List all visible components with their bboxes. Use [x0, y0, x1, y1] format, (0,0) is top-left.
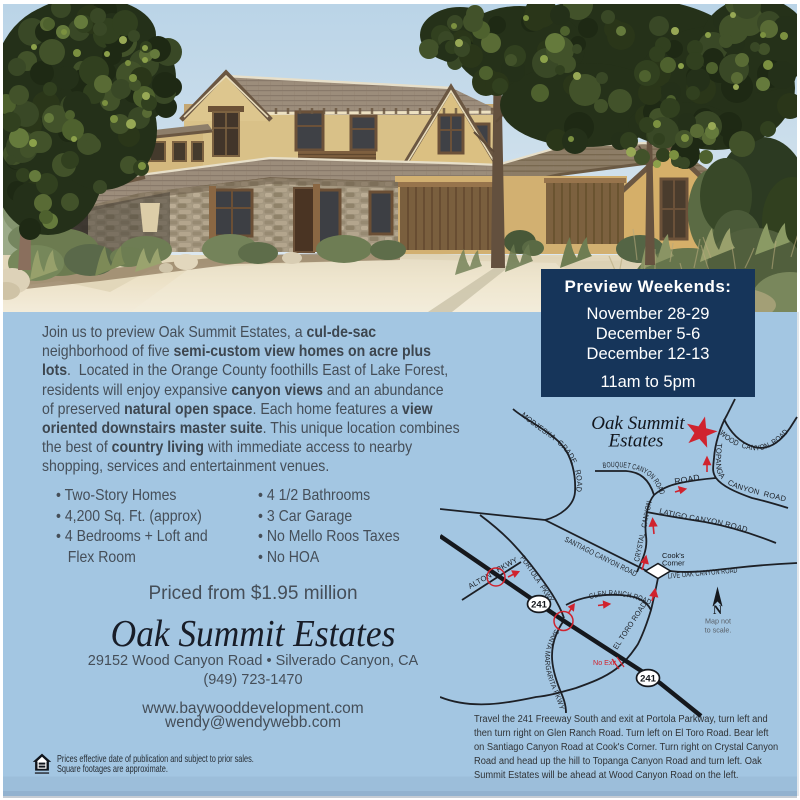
- svg-text:TOPANGA CANYON ROAD: TOPANGA CANYON ROAD: [714, 443, 788, 504]
- svg-text:CRYSTAL CANYON: CRYSTAL CANYON: [632, 500, 654, 563]
- svg-text:Estates: Estates: [608, 431, 664, 452]
- svg-text:SANTIAGO CANYON ROAD: SANTIAGO CANYON ROAD: [563, 535, 639, 579]
- svg-text:BOUQUET CANYON ROAD: BOUQUET CANYON ROAD: [602, 460, 667, 496]
- svg-text:SANTA MARGARITA PKWY: SANTA MARGARITA PKWY: [543, 628, 567, 711]
- svg-text:to scale.: to scale.: [705, 626, 732, 635]
- svg-text:Corner: Corner: [662, 559, 685, 568]
- svg-text:241: 241: [531, 600, 548, 611]
- svg-text:WOOD CANYON ROAD: WOOD CANYON ROAD: [718, 427, 790, 452]
- svg-text:EL TORO ROAD: EL TORO ROAD: [611, 600, 649, 651]
- svg-text:LIVE OAK CANYON ROAD: LIVE OAK CANYON ROAD: [667, 565, 738, 580]
- svg-text:241: 241: [640, 674, 657, 685]
- svg-text:ROAD: ROAD: [674, 472, 701, 486]
- svg-text:LATIGO CANYON ROAD: LATIGO CANYON ROAD: [658, 506, 749, 534]
- svg-text:Map not: Map not: [705, 617, 731, 626]
- svg-text:N: N: [713, 603, 722, 617]
